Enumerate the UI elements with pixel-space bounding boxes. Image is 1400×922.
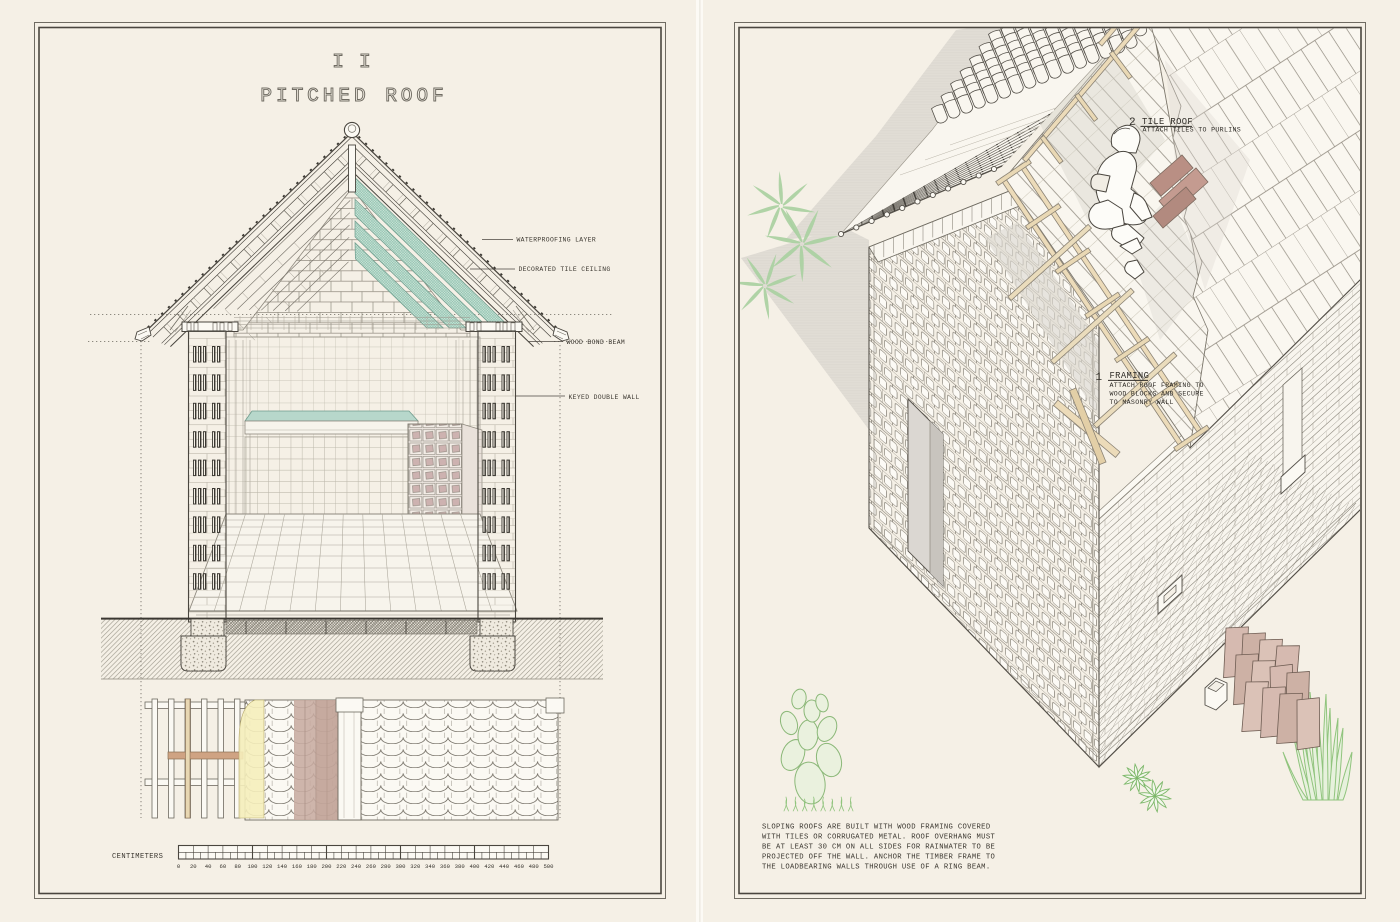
svg-text:420: 420 <box>484 863 495 870</box>
svg-text:DECORATED TILE CEILING: DECORATED TILE CEILING <box>519 266 611 273</box>
svg-text:220: 220 <box>336 863 347 870</box>
svg-text:200: 200 <box>321 863 332 870</box>
svg-text:280: 280 <box>381 863 392 870</box>
svg-text:320: 320 <box>410 863 421 870</box>
svg-text:140: 140 <box>277 863 288 870</box>
svg-text:440: 440 <box>499 863 510 870</box>
svg-text:80: 80 <box>234 863 241 870</box>
svg-text:260: 260 <box>366 863 377 870</box>
svg-text:KEYED DOUBLE WALL: KEYED DOUBLE WALL <box>569 394 640 401</box>
svg-text:240: 240 <box>351 863 362 870</box>
svg-text:460: 460 <box>514 863 525 870</box>
svg-text:400: 400 <box>469 863 480 870</box>
svg-text:WITH TILES OR CORRUGATED METAL: WITH TILES OR CORRUGATED METAL. ROOF OVE… <box>762 833 995 841</box>
svg-text:PITCHED ROOF: PITCHED ROOF <box>260 85 447 107</box>
svg-text:BE AT LEAST 30 CM ON ALL SIDES: BE AT LEAST 30 CM ON ALL SIDES FOR RAINW… <box>762 844 995 852</box>
svg-text:120: 120 <box>262 863 273 870</box>
svg-text:180: 180 <box>307 863 318 870</box>
svg-text:CENTIMETERS: CENTIMETERS <box>112 853 163 861</box>
svg-text:340: 340 <box>425 863 436 870</box>
svg-text:500: 500 <box>543 863 554 870</box>
svg-text:380: 380 <box>455 863 466 870</box>
svg-text:480: 480 <box>529 863 540 870</box>
svg-text:TILE ROOF: TILE ROOF <box>1142 117 1193 127</box>
svg-text:WOOD BOND BEAM: WOOD BOND BEAM <box>567 339 626 346</box>
svg-text:360: 360 <box>440 863 451 870</box>
svg-text:40: 40 <box>205 863 212 870</box>
svg-text:20: 20 <box>190 863 197 870</box>
svg-text:WOOD BLOCKS AND SECURE: WOOD BLOCKS AND SECURE <box>1110 390 1204 397</box>
svg-text:ATTACH ROOF FRAMING TO: ATTACH ROOF FRAMING TO <box>1110 382 1204 389</box>
svg-text:2: 2 <box>1129 117 1136 129</box>
svg-text:SLOPING ROOFS ARE BUILT WITH W: SLOPING ROOFS ARE BUILT WITH WOOD FRAMIN… <box>762 823 991 831</box>
svg-text:ATTACH TILES TO PURLINS: ATTACH TILES TO PURLINS <box>1143 127 1242 134</box>
svg-text:1: 1 <box>1096 372 1103 384</box>
svg-text:PROJECTED OFF THE WALL. ANCHOR: PROJECTED OFF THE WALL. ANCHOR THE TIMBE… <box>762 854 995 862</box>
svg-text:60: 60 <box>220 863 227 870</box>
svg-text:100: 100 <box>247 863 258 870</box>
svg-text:WATERPROOFING LAYER: WATERPROOFING LAYER <box>517 237 597 244</box>
svg-text:II: II <box>332 51 385 73</box>
svg-text:300: 300 <box>395 863 406 870</box>
svg-text:FRAMING: FRAMING <box>1110 371 1150 381</box>
svg-text:TO MASONRY WALL: TO MASONRY WALL <box>1110 399 1174 406</box>
svg-text:160: 160 <box>292 863 303 870</box>
svg-text:THE LOADBEARING WALLS THROUGH: THE LOADBEARING WALLS THROUGH USE OF A R… <box>762 864 991 872</box>
